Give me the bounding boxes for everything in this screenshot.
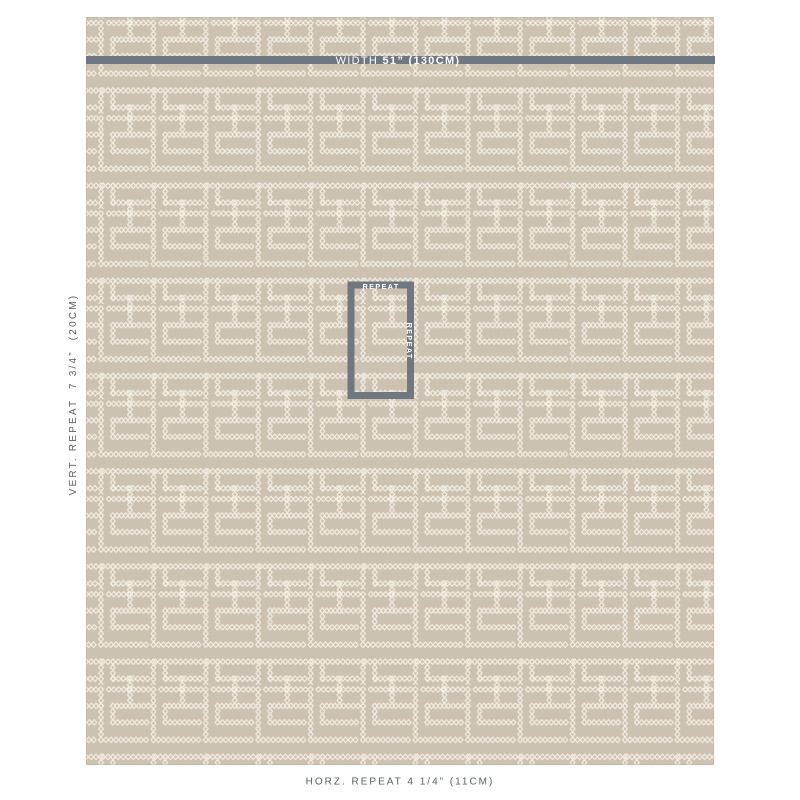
svg-text:REPEAT: REPEAT xyxy=(405,322,414,359)
svg-text:VERT. REPEAT 7 3/4” (20CM): VERT. REPEAT 7 3/4” (20CM) xyxy=(68,294,79,496)
svg-text:WIDTH 51” (130CM): WIDTH 51” (130CM) xyxy=(336,55,461,67)
svg-text:REPEAT: REPEAT xyxy=(362,282,399,291)
svg-text:HORZ. REPEAT 4 1/4” (11CM): HORZ. REPEAT 4 1/4” (11CM) xyxy=(306,777,495,788)
